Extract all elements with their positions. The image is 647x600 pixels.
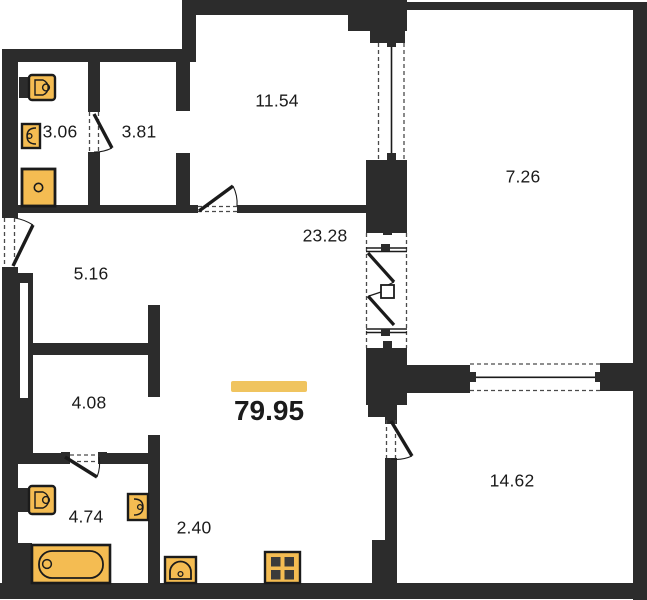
area-label-loggia: 7.26	[506, 167, 541, 188]
area-label-wc-hall: 2.40	[177, 518, 212, 539]
stove-icon	[265, 552, 300, 583]
floor-plan: 3.06 3.81 11.54 7.26 23.28 5.16 4.08 14.…	[0, 0, 647, 600]
area-label-bathroom-top: 3.06	[43, 122, 78, 143]
sink-icon	[128, 494, 148, 520]
toilet-icon	[19, 75, 55, 100]
sink-icon	[22, 124, 40, 148]
toilet-icon	[18, 486, 55, 514]
area-label-room-top: 11.54	[255, 91, 299, 112]
door-swing	[198, 186, 237, 212]
area-label-corridor: 4.08	[72, 393, 107, 414]
door-swing	[65, 455, 100, 477]
area-label-bedroom: 14.62	[490, 471, 535, 492]
area-label-living-kitchen: 23.28	[303, 226, 348, 247]
door-swing	[90, 112, 113, 152]
door-swing	[387, 420, 413, 459]
shower-tray-icon	[22, 169, 55, 206]
area-label-bathroom-bottom: 4.74	[69, 507, 104, 528]
area-label-hallway: 5.16	[74, 264, 109, 285]
window	[466, 364, 605, 391]
sink-icon	[165, 557, 196, 583]
window	[379, 39, 405, 161]
door-swing	[5, 218, 34, 267]
total-area-highlight	[231, 381, 307, 392]
area-label-hall-top: 3.81	[122, 122, 157, 143]
bathtub-icon	[32, 545, 110, 583]
folding-door	[366, 228, 407, 348]
wardrobe-niche	[20, 283, 28, 398]
total-area-value: 79.95	[234, 395, 304, 427]
